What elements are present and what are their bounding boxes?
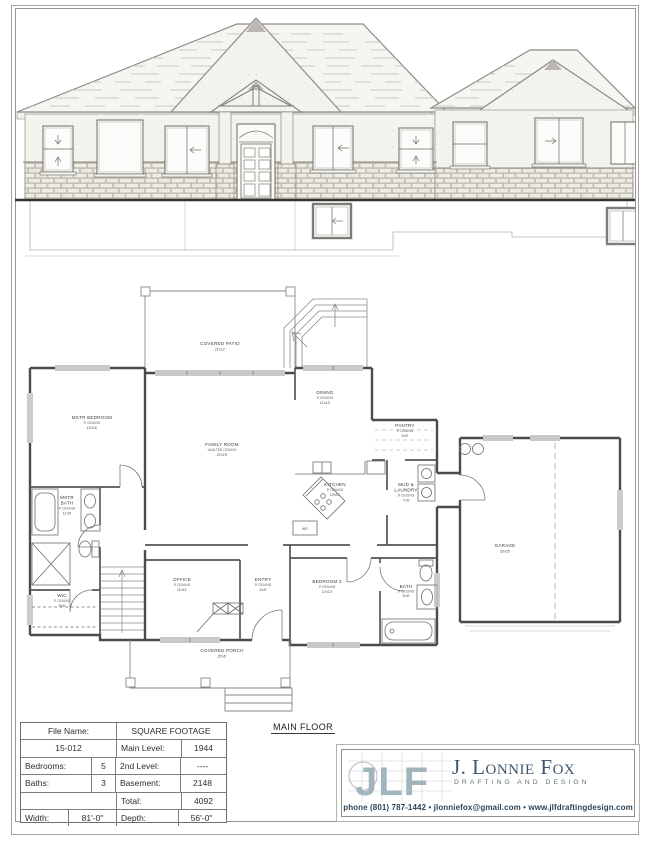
garage-apron <box>465 626 615 631</box>
jlf-monogram-svg: JLF <box>348 752 452 802</box>
room-label-covered-porch: COVERED PORCH <box>200 648 243 653</box>
svg-text:VAULTED CEILING: VAULTED CEILING <box>208 448 237 452</box>
kitchen-counter <box>295 461 365 474</box>
room-label-mud-laundry: MUD & <box>398 482 414 487</box>
pantry-shelves <box>375 430 433 450</box>
interior-walls <box>30 368 437 645</box>
closet-rod <box>32 607 98 627</box>
table-row: File Name: SQUARE FOOTAGE <box>21 723 226 740</box>
svg-text:8'x5': 8'x5' <box>403 594 410 598</box>
vanity <box>81 489 100 531</box>
bedrooms-value: 5 <box>92 758 116 774</box>
room-label-garage: GARAGE <box>495 543 516 548</box>
info-table: File Name: SQUARE FOOTAGE 15-012 Main Le… <box>20 722 227 823</box>
svg-text:9' CEILING: 9' CEILING <box>255 583 272 587</box>
window <box>94 120 146 177</box>
front-elevation-drawing <box>15 8 635 270</box>
width-label: Width: <box>21 810 69 826</box>
door-swings <box>70 465 485 640</box>
svg-text:9' CEILING: 9' CEILING <box>398 590 415 594</box>
window <box>310 126 356 173</box>
column-stone-base <box>278 164 296 200</box>
svg-text:5'x5': 5'x5' <box>402 434 409 438</box>
depth-value: 56'-0" <box>179 810 224 826</box>
svg-text:11'x11': 11'x11' <box>177 588 187 592</box>
svg-text:13'x16': 13'x16' <box>87 426 98 430</box>
stairs <box>101 567 144 633</box>
plan-title: MAIN FLOOR <box>271 722 335 734</box>
room-label-bedroom2: BEDROOM 2 <box>312 579 342 584</box>
basement-window <box>607 208 635 244</box>
fridge <box>367 461 385 474</box>
basement-value: 2148 <box>181 775 224 791</box>
room-label-office: OFFICE <box>173 577 191 582</box>
room-label-kitchen: KITCHEN <box>324 482 346 487</box>
room-label-family-room: FAMILY ROOM <box>205 442 239 447</box>
table-row: Total: 4092 <box>21 793 226 810</box>
svg-text:33'x25': 33'x25' <box>500 550 511 554</box>
width-value: 81'-0" <box>69 810 117 826</box>
covered-patio-outline <box>141 287 295 373</box>
room-label-mstr-bath: MSTR <box>60 495 74 500</box>
front-door <box>237 124 275 200</box>
contact-line: phone (801) 787-1442 • jlonniefox@gmail.… <box>342 803 634 812</box>
second-level-label: 2nd Level: <box>116 758 181 774</box>
porch-steps <box>225 688 292 711</box>
svg-text:9'x5': 9'x5' <box>59 604 66 608</box>
svg-text:9' CEILING: 9' CEILING <box>327 488 344 492</box>
svg-text:9' CEILING: 9' CEILING <box>398 494 415 498</box>
svg-text:9' CEILING: 9' CEILING <box>317 396 334 400</box>
svg-text:25'x6': 25'x6' <box>218 655 227 659</box>
svg-text:9' CEILING: 9' CEILING <box>319 585 336 589</box>
file-name-label: File Name: <box>21 723 117 739</box>
depth-label: Depth: <box>117 810 179 826</box>
svg-text:12'x13': 12'x13' <box>322 590 333 594</box>
room-label-air: AIR <box>302 527 308 531</box>
baths-value: 3 <box>92 775 116 791</box>
svg-text:6'x9': 6'x9' <box>260 588 267 592</box>
sqft-header: SQUARE FOOTAGE <box>117 723 225 739</box>
fixtures <box>32 430 615 643</box>
porch-column <box>281 112 293 164</box>
table-row: Baths: 3 Basement: 2148 <box>21 775 226 792</box>
room-label-entry: ENTRY <box>255 577 272 582</box>
room-label-pantry: PANTRY <box>395 423 414 428</box>
bedrooms-label: Bedrooms: <box>21 758 92 774</box>
main-level-label: Main Level: <box>117 740 182 756</box>
table-row: 15-012 Main Level: 1944 <box>21 740 226 757</box>
table-row: Bedrooms: 5 2nd Level: ---- <box>21 758 226 775</box>
company-name-block: J. Lonnie Fox DRAFTING AND DESIGN <box>452 757 590 786</box>
porch-column <box>219 112 231 164</box>
svg-text:LAUNDRY: LAUNDRY <box>394 488 417 493</box>
window <box>162 126 212 177</box>
office-double-door <box>197 603 243 632</box>
furnace <box>473 444 484 455</box>
room-label-covered-patio: COVERED PATIO <box>200 341 240 346</box>
room-label-mstr-bedroom: MSTR BEDROOM <box>72 415 112 420</box>
floor-plan-drawing: COVERED PATIO 21'x12' MSTR BEDROOM 9' CE… <box>15 275 635 720</box>
window <box>396 128 436 173</box>
blank-cell <box>21 793 117 809</box>
svg-text:9' CEILING: 9' CEILING <box>174 583 191 587</box>
svg-text:11'x13': 11'x13' <box>320 401 331 405</box>
table-row: Width: 81'-0" Depth: 56'-0" <box>21 810 226 826</box>
total-label: Total: <box>117 793 182 809</box>
window <box>532 118 586 167</box>
room-labels: COVERED PATIO 21'x12' MSTR BEDROOM 9' CE… <box>54 341 516 659</box>
svg-text:13'x14': 13'x14' <box>330 493 341 497</box>
svg-text:9' CEILING: 9' CEILING <box>59 507 76 511</box>
company-tagline: DRAFTING AND DESIGN <box>454 779 590 786</box>
deck-steps <box>284 299 367 368</box>
svg-text:7'x9': 7'x9' <box>403 499 410 503</box>
vanity <box>417 585 437 609</box>
window <box>450 122 490 169</box>
jlf-monogram: JLF <box>348 752 452 802</box>
company-logo-outer-box: JLF J. Lonnie Fox DRAFTING AND DESIGN ph… <box>336 744 640 822</box>
total-value: 4092 <box>182 793 225 809</box>
svg-text:20'x19': 20'x19' <box>217 453 228 457</box>
svg-text:BATH: BATH <box>61 501 74 506</box>
file-name-value: 15-012 <box>21 740 117 756</box>
svg-text:9' CEILING: 9' CEILING <box>397 429 414 433</box>
window <box>611 122 635 164</box>
svg-text:11'x9': 11'x9' <box>63 512 72 516</box>
washer <box>418 465 435 482</box>
toilet <box>92 541 99 557</box>
room-label-bath: BATH <box>400 584 413 589</box>
svg-text:9' CEILING: 9' CEILING <box>84 421 101 425</box>
basement-label: Basement: <box>116 775 181 791</box>
company-logo-block: JLF J. Lonnie Fox DRAFTING AND DESIGN ph… <box>341 749 635 817</box>
window <box>40 126 76 175</box>
svg-text:9' CEILING: 9' CEILING <box>54 599 71 603</box>
basement-window <box>313 204 351 238</box>
main-level-value: 1944 <box>182 740 225 756</box>
company-name: J. Lonnie Fox <box>452 757 590 778</box>
room-label-dining: DINING <box>316 390 334 395</box>
second-level-value: ---- <box>181 758 224 774</box>
dryer <box>418 484 435 501</box>
monogram-letters: JLF <box>355 760 429 802</box>
column-stone-base <box>216 164 234 200</box>
drawing-sheet: COVERED PATIO 21'x12' MSTR BEDROOM 9' CE… <box>0 0 650 842</box>
baths-label: Baths: <box>21 775 92 791</box>
room-dim: 21'x12' <box>215 348 226 352</box>
room-label-wic: WIC <box>57 593 67 598</box>
